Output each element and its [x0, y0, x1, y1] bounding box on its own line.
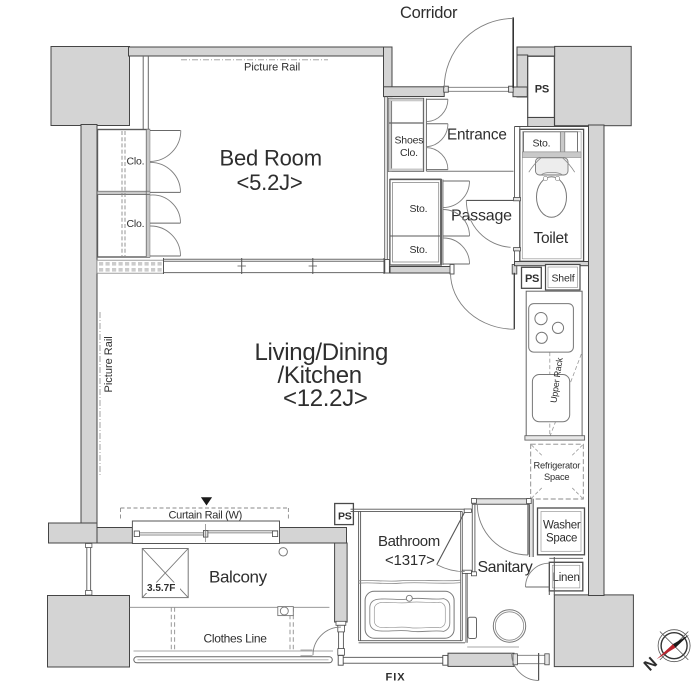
svg-text:PS: PS: [535, 84, 549, 96]
svg-text:Picture Rail: Picture Rail: [103, 336, 115, 392]
svg-text:Bathroom: Bathroom: [378, 533, 440, 550]
svg-text:Washer: Washer: [543, 520, 581, 532]
svg-text:Sanitary: Sanitary: [478, 559, 533, 576]
svg-text:Shoes: Shoes: [395, 135, 424, 147]
svg-text:Corridor: Corridor: [400, 4, 458, 22]
svg-text:Sto.: Sto.: [410, 203, 428, 215]
svg-text:<1317>: <1317>: [385, 552, 435, 569]
svg-text:Clo.: Clo.: [400, 147, 418, 159]
svg-text:Refrigerator: Refrigerator: [534, 461, 581, 471]
svg-text:Sto.: Sto.: [410, 244, 428, 256]
svg-text:Balcony: Balcony: [209, 568, 268, 587]
svg-text:Bed Room: Bed Room: [220, 146, 322, 171]
svg-text:Toilet: Toilet: [534, 230, 569, 247]
svg-text:Space: Space: [544, 472, 569, 482]
svg-text:Curtain Rail (W): Curtain Rail (W): [169, 510, 242, 522]
svg-text:Picture Rail: Picture Rail: [244, 62, 300, 74]
svg-text:PS: PS: [525, 273, 539, 285]
svg-text:3.5.7F: 3.5.7F: [147, 583, 175, 594]
svg-text:Shelf: Shelf: [552, 273, 575, 285]
svg-text:Entrance: Entrance: [447, 127, 507, 144]
svg-text:Clo.: Clo.: [127, 156, 145, 168]
svg-text:Clothes Line: Clothes Line: [204, 632, 268, 646]
svg-text:Sto.: Sto.: [533, 138, 551, 150]
svg-text:Space: Space: [546, 533, 577, 545]
svg-text:<5.2J>: <5.2J>: [237, 170, 303, 195]
svg-text:Clo.: Clo.: [127, 218, 145, 230]
svg-text:<12.2J>: <12.2J>: [283, 385, 368, 412]
svg-text:PS: PS: [338, 511, 352, 523]
svg-text:FIX: FIX: [386, 672, 406, 684]
svg-text:Linen: Linen: [553, 572, 580, 584]
